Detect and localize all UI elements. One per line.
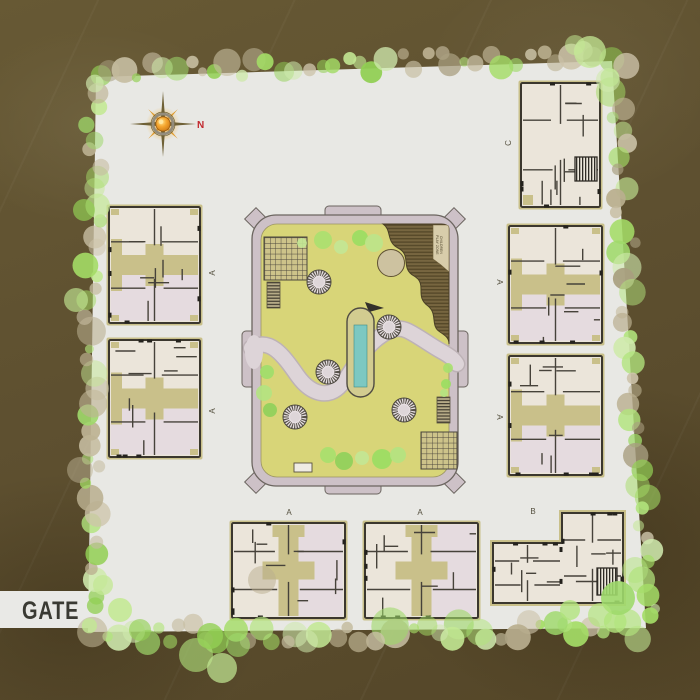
building-label-block-a-west-1: A	[208, 270, 217, 276]
garden-tree	[263, 403, 277, 417]
tree	[467, 55, 483, 71]
tree	[405, 61, 422, 78]
tree	[607, 112, 619, 124]
tree	[560, 600, 580, 620]
tree	[165, 57, 189, 81]
garden-tree	[355, 451, 369, 465]
tree	[82, 618, 97, 633]
tree	[93, 460, 105, 472]
gate-label: GATE	[22, 597, 79, 625]
tree	[85, 345, 94, 354]
tree	[93, 159, 110, 176]
site-plan-canvas: GATE N CHILDRENPLAY ZONE AACAAAAB	[0, 0, 700, 700]
building-label-block-a-east-2: A	[495, 414, 504, 420]
tree	[67, 457, 93, 483]
tree	[366, 632, 385, 651]
garden-tree	[314, 231, 332, 249]
garden-tree	[390, 447, 406, 463]
site-plan: GATE N CHILDRENPLAY ZONE AACAAAAB	[0, 0, 700, 700]
play-zone-label: CHILDRENPLAY ZONE	[435, 235, 443, 254]
tree	[93, 575, 113, 595]
compass-north-label: N	[197, 120, 204, 131]
garden-tree	[372, 449, 392, 469]
building-block-a-south-1	[230, 521, 348, 621]
tree	[495, 633, 508, 646]
garden-tree	[441, 379, 451, 389]
tree	[627, 373, 639, 385]
building-label-block-a-west-2: A	[208, 408, 217, 414]
tree	[83, 226, 106, 249]
tree	[505, 624, 531, 650]
building-block-a-east-1	[507, 224, 605, 346]
building-block-a-west-1	[107, 205, 203, 326]
garden-path-entry	[245, 335, 263, 369]
tree	[329, 629, 347, 647]
garden-tree	[256, 385, 272, 401]
tree	[612, 164, 624, 176]
tree	[374, 47, 398, 71]
tree	[284, 61, 302, 79]
garden-tree	[260, 365, 274, 379]
garden-tree	[365, 234, 383, 252]
tree	[348, 632, 368, 652]
tree	[282, 636, 295, 649]
garden-tree	[297, 238, 307, 248]
tree	[213, 49, 240, 76]
tree	[588, 603, 612, 627]
garden-tree	[320, 447, 336, 463]
tree	[73, 199, 95, 221]
tree	[303, 63, 316, 76]
building-label-block-a-south-1: A	[286, 508, 292, 517]
tree	[509, 58, 523, 72]
tree	[129, 619, 151, 641]
planter-circle	[392, 398, 416, 422]
tree	[636, 501, 649, 514]
pergola	[437, 397, 450, 423]
tree	[613, 313, 632, 332]
tree	[186, 56, 198, 68]
planter-circle	[283, 405, 307, 429]
garden-tree	[443, 363, 453, 373]
building-label-block-a-south-2: A	[417, 508, 423, 517]
planter-circle	[307, 270, 331, 294]
tree	[610, 206, 622, 218]
tree	[622, 351, 645, 374]
tree	[630, 237, 641, 248]
pergola	[267, 282, 280, 308]
garden-kiosk	[294, 463, 312, 472]
tree	[86, 75, 104, 93]
tree	[325, 58, 340, 73]
garden-tree	[334, 240, 348, 254]
building-label-block-a-east-1: A	[495, 279, 504, 285]
tree	[132, 73, 141, 82]
tree	[90, 536, 103, 549]
tree	[163, 635, 177, 649]
building-block-c-northeast	[519, 81, 603, 210]
paved-plaza	[421, 432, 457, 469]
tree	[207, 653, 237, 683]
tree	[248, 566, 276, 594]
tree	[198, 67, 207, 76]
tree	[596, 68, 620, 92]
staircase-hatch	[575, 157, 597, 181]
tree	[637, 584, 660, 607]
tree	[226, 633, 250, 657]
garden-tree	[335, 452, 353, 470]
tree	[423, 47, 435, 59]
tree	[622, 557, 648, 583]
tree	[417, 615, 437, 635]
tree	[78, 117, 94, 133]
tree	[565, 35, 585, 55]
tree	[398, 48, 409, 59]
tree	[77, 485, 104, 512]
pool-water	[354, 325, 367, 387]
tree	[633, 520, 644, 531]
building-label-block-c-northeast: C	[504, 140, 513, 146]
tree	[409, 623, 419, 633]
planter-circle	[377, 315, 401, 339]
tree	[73, 253, 99, 279]
svg-text:PLAY ZONE: PLAY ZONE	[435, 235, 439, 254]
central-garden: CHILDRENPLAY ZONE	[242, 206, 468, 494]
tree	[90, 283, 102, 295]
building-block-a-west-2	[107, 338, 203, 460]
tree	[257, 53, 274, 70]
compass-sun	[156, 117, 170, 131]
tree	[632, 422, 644, 434]
tree	[236, 70, 248, 82]
tree	[172, 619, 185, 632]
tree	[80, 353, 93, 366]
planter-circle	[316, 360, 340, 384]
tree	[153, 622, 164, 633]
tree	[525, 49, 537, 61]
building-block-a-south-2	[363, 521, 481, 621]
building-block-a-east-2	[507, 354, 605, 478]
tree	[619, 279, 646, 306]
tree	[197, 623, 223, 649]
sand-pit	[378, 250, 405, 277]
garden-tree	[440, 389, 448, 397]
tree	[642, 607, 658, 623]
tree	[606, 189, 626, 209]
tree	[86, 132, 104, 150]
tree	[438, 53, 461, 76]
building-label-block-b-southeast: B	[530, 507, 535, 516]
tree	[108, 598, 132, 622]
garden-group: CHILDRENPLAY ZONE	[242, 206, 468, 494]
tree	[64, 288, 88, 312]
